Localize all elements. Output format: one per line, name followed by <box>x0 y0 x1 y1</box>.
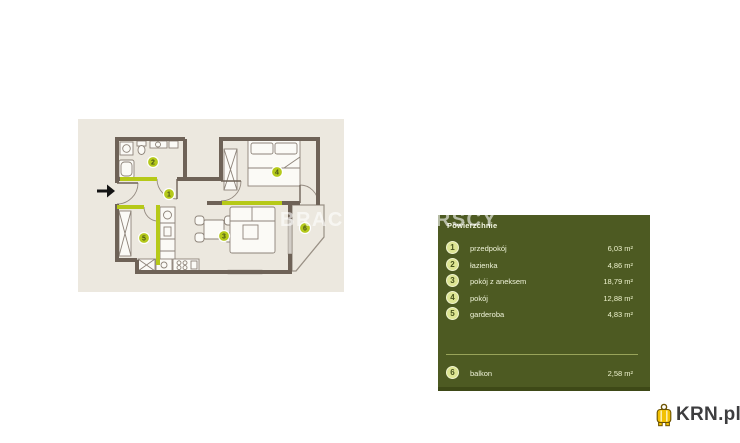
sofa <box>230 207 275 253</box>
row-label: łazienka <box>470 261 498 270</box>
room-marker-3: 3 <box>219 231 230 242</box>
row-label: balkon <box>470 369 492 378</box>
page-root: { "watermark": { "text": "BRACIA SADURSC… <box>0 0 740 443</box>
room-marker-1: 1 <box>164 189 175 200</box>
svg-text:4: 4 <box>275 170 279 177</box>
row-label: przedpokój <box>470 244 507 253</box>
legend-row-balcony: 6 balkon 2,58 m² <box>438 365 650 381</box>
washing-machine <box>120 142 133 155</box>
legend-panel: Powierzchnie 1 przedpokój 6,03 m² 2 łazi… <box>438 215 650 391</box>
legend-row: 1 przedpokój 6,03 m² <box>438 240 650 256</box>
floorplan-canvas: 1 2 3 4 5 6 <box>78 119 344 292</box>
row-label: garderoba <box>470 310 504 319</box>
svg-text:3: 3 <box>222 234 226 241</box>
wardrobe-garderoba <box>119 211 131 256</box>
entrance-arrow-icon <box>97 185 115 198</box>
toilet <box>137 141 146 155</box>
row-number-badge: 6 <box>446 366 459 379</box>
row-number-badge: 1 <box>446 241 459 254</box>
room-marker-6: 6 <box>300 223 311 234</box>
row-number-badge: 3 <box>446 274 459 287</box>
fridge <box>138 259 155 271</box>
logo-text: KRN.pl <box>676 404 740 426</box>
wardrobe-bedroom <box>224 149 237 190</box>
row-number-badge: 5 <box>446 307 459 320</box>
room-marker-2: 2 <box>148 157 159 168</box>
stove <box>173 259 199 271</box>
svg-text:1: 1 <box>167 192 171 199</box>
bathroom-sink <box>150 141 178 148</box>
room-marker-4: 4 <box>272 167 283 178</box>
row-area: 12,88 m² <box>603 294 633 303</box>
bathtub <box>119 160 134 178</box>
room-marker-5: 5 <box>139 233 150 244</box>
svg-text:2: 2 <box>151 160 155 167</box>
row-area: 4,86 m² <box>608 261 633 270</box>
bed <box>248 140 300 186</box>
legend-row: 2 łazienka 4,86 m² <box>438 257 650 273</box>
kitchen-cabinets <box>160 207 175 263</box>
row-area: 18,79 m² <box>603 277 633 286</box>
legend-title: Powierzchnie <box>447 221 497 230</box>
legend-row: 5 garderoba 4,83 m² <box>438 306 650 322</box>
row-label: pokój <box>470 294 488 303</box>
legend-row: 3 pokój z aneksem 18,79 m² <box>438 273 650 289</box>
row-area: 4,83 m² <box>608 310 633 319</box>
legend-divider <box>446 354 638 355</box>
row-label: pokój z aneksem <box>470 277 526 286</box>
floorplan-svg: 1 2 3 4 5 6 <box>78 119 344 292</box>
row-number-badge: 2 <box>446 258 459 271</box>
svg-text:6: 6 <box>303 226 307 233</box>
legend-row: 4 pokój 12,88 m² <box>438 290 650 306</box>
furniture-layer <box>119 140 300 271</box>
row-number-badge: 4 <box>446 291 459 304</box>
lantern-icon <box>654 403 674 428</box>
row-area: 6,03 m² <box>608 244 633 253</box>
krn-logo: KRN.pl <box>654 402 740 428</box>
balcony-outline <box>292 205 324 271</box>
row-area: 2,58 m² <box>608 369 633 378</box>
svg-text:5: 5 <box>142 236 146 243</box>
